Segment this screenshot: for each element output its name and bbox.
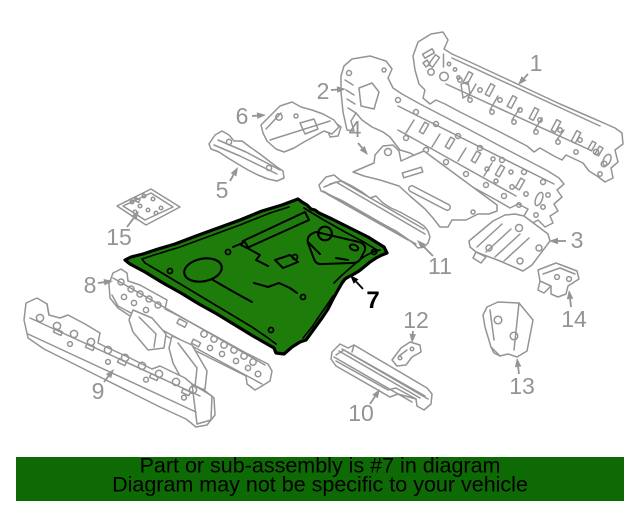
svg-text:Diagram may not be specific to: Diagram may not be specific to your vehi… <box>112 473 528 497</box>
svg-text:13: 13 <box>509 373 535 399</box>
svg-text:4: 4 <box>349 116 362 142</box>
svg-text:8: 8 <box>84 272 97 298</box>
svg-text:12: 12 <box>403 307 429 333</box>
svg-text:2: 2 <box>317 78 330 104</box>
svg-text:5: 5 <box>216 177 229 203</box>
svg-text:7: 7 <box>366 287 379 314</box>
svg-text:3: 3 <box>571 227 584 253</box>
svg-text:6: 6 <box>236 103 249 129</box>
svg-text:15: 15 <box>106 224 132 250</box>
svg-text:14: 14 <box>561 306 587 332</box>
svg-text:11: 11 <box>428 253 452 279</box>
svg-text:9: 9 <box>92 378 105 404</box>
svg-text:1: 1 <box>530 50 543 76</box>
